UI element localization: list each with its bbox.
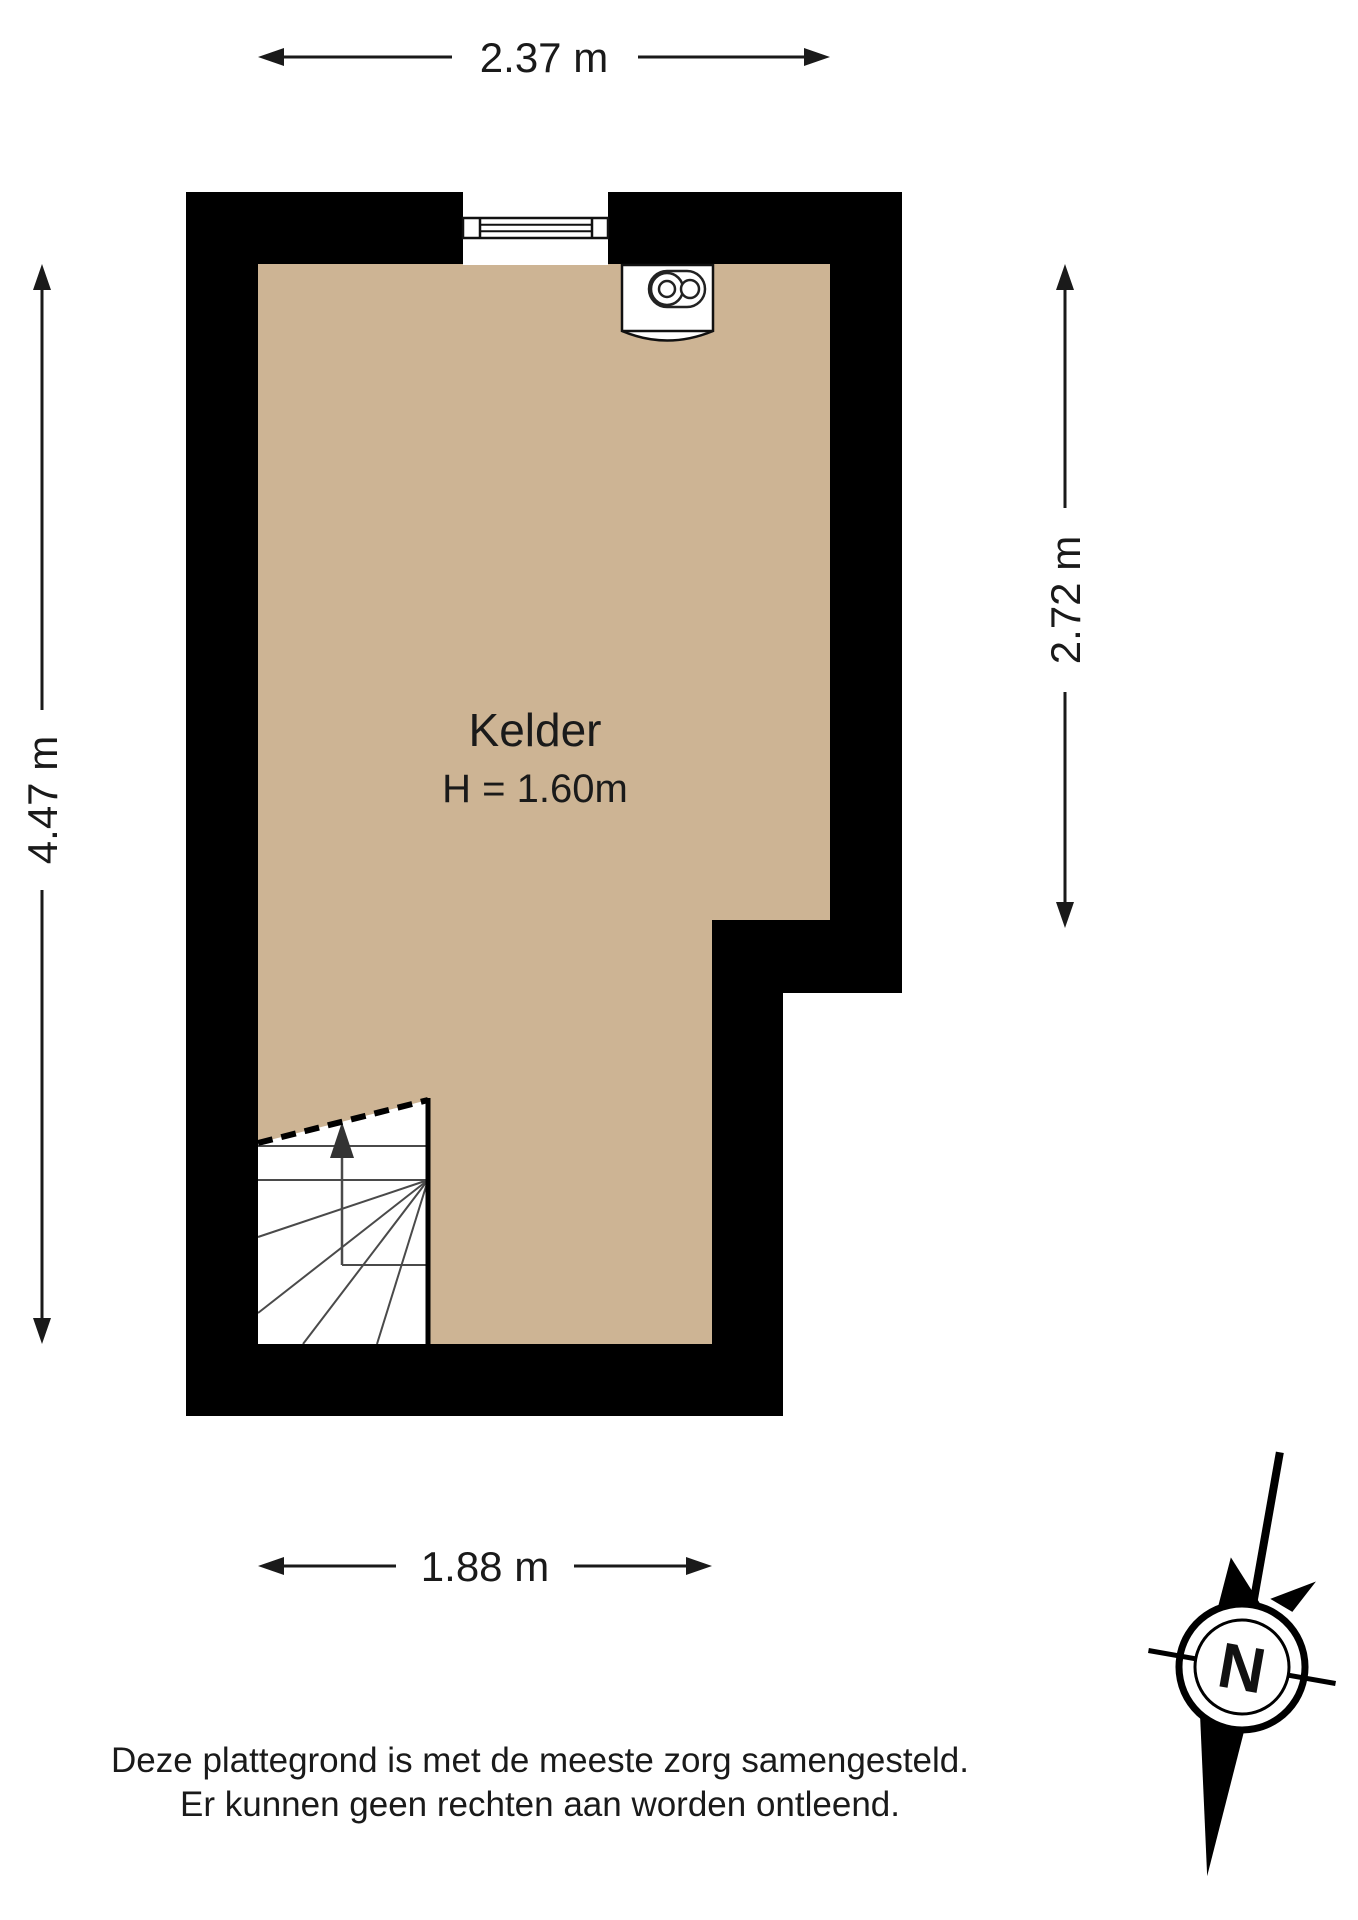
arrow-up-icon <box>1056 264 1074 290</box>
boiler-dial-inner <box>659 281 675 297</box>
disclaimer-line-2: Er kunnen geen rechten aan worden ontlee… <box>180 1785 900 1824</box>
disclaimer: Deze plattegrond is met de meeste zorg s… <box>111 1741 969 1824</box>
boiler-dial-small <box>681 280 699 298</box>
floorplan-canvas: Kelder H = 1.60m 2.37 m 4.47 m 2.72 m <box>0 0 1358 1920</box>
arrow-down-icon <box>1056 902 1074 928</box>
staircase <box>258 1098 428 1344</box>
compass-north-needle-line <box>1253 1452 1280 1606</box>
arrow-right-icon <box>686 1557 712 1575</box>
arrow-up-icon <box>33 264 51 290</box>
compass-wing-right <box>1269 1574 1316 1615</box>
dimension-label-left: 4.47 m <box>19 736 66 864</box>
dimension-label-top: 2.37 m <box>480 34 608 81</box>
disclaimer-line-1: Deze plattegrond is met de meeste zorg s… <box>111 1741 969 1780</box>
dimension-label-bottom: 1.88 m <box>421 1543 549 1590</box>
boiler-icon <box>622 265 713 341</box>
compass-south-needle <box>1172 1710 1247 1878</box>
dimension-top: 2.37 m <box>258 34 830 81</box>
dimension-right: 2.72 m <box>1042 264 1089 928</box>
dimension-left: 4.47 m <box>19 264 66 1344</box>
room-height-label: H = 1.60m <box>442 767 628 811</box>
compass-north-icon: N <box>1112 1436 1358 1892</box>
floorplan-page: Kelder H = 1.60m 2.37 m 4.47 m 2.72 m <box>0 0 1358 1920</box>
arrow-right-icon <box>804 48 830 66</box>
arrow-left-icon <box>258 48 284 66</box>
room-label: Kelder <box>469 704 602 756</box>
dimension-label-right: 2.72 m <box>1042 536 1089 664</box>
dimension-bottom: 1.88 m <box>258 1543 712 1590</box>
arrow-left-icon <box>258 1557 284 1575</box>
window-icon <box>463 191 608 265</box>
window-frame <box>463 218 608 238</box>
arrow-down-icon <box>33 1318 51 1344</box>
